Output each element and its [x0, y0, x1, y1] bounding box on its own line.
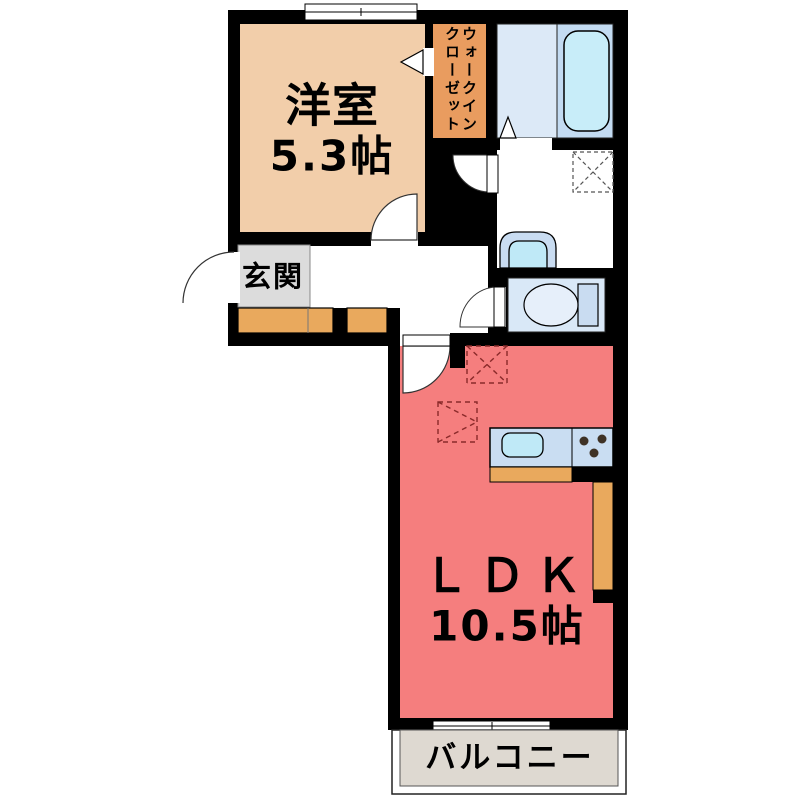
wic-label-col1: ウォークイン	[461, 26, 476, 134]
washbasin-icon	[500, 232, 556, 268]
kitchen-sink-icon	[502, 433, 543, 457]
front-door	[183, 252, 240, 303]
floorplan-drawing	[0, 0, 800, 800]
bathtub	[564, 31, 609, 131]
bathroom	[497, 24, 613, 150]
balcony-label: バルコニー	[425, 741, 594, 777]
toilet-door	[460, 287, 506, 327]
entrance-label: 玄関	[242, 260, 304, 293]
shoe-cabinet	[238, 308, 387, 333]
wic-label-col2: クローゼット	[444, 26, 459, 134]
ldk-room	[400, 346, 628, 718]
western-room-name: 洋室	[285, 78, 379, 132]
floorplan-canvas: 洋室 5.3帖 ウォークイン クローゼット 玄関 ＬＤＫ 10.5帖 バルコニー	[0, 0, 800, 800]
ldk-name: ＬＤＫ	[423, 548, 591, 602]
toilet-room	[508, 278, 605, 332]
walk-in-closet-label: ウォークイン クローゼット	[442, 26, 478, 134]
western-room-window-icon	[305, 4, 417, 20]
washroom	[497, 150, 613, 268]
western-room-label: 洋室 5.3帖	[270, 79, 394, 180]
ldk-label: ＬＤＫ 10.5帖	[423, 549, 591, 650]
kitchen-side-counter	[593, 482, 613, 590]
bath-door-opening	[500, 138, 552, 150]
western-room-area: 5.3帖	[270, 132, 394, 180]
toilet-icon	[524, 284, 598, 326]
ldk-area: 10.5帖	[423, 602, 591, 650]
